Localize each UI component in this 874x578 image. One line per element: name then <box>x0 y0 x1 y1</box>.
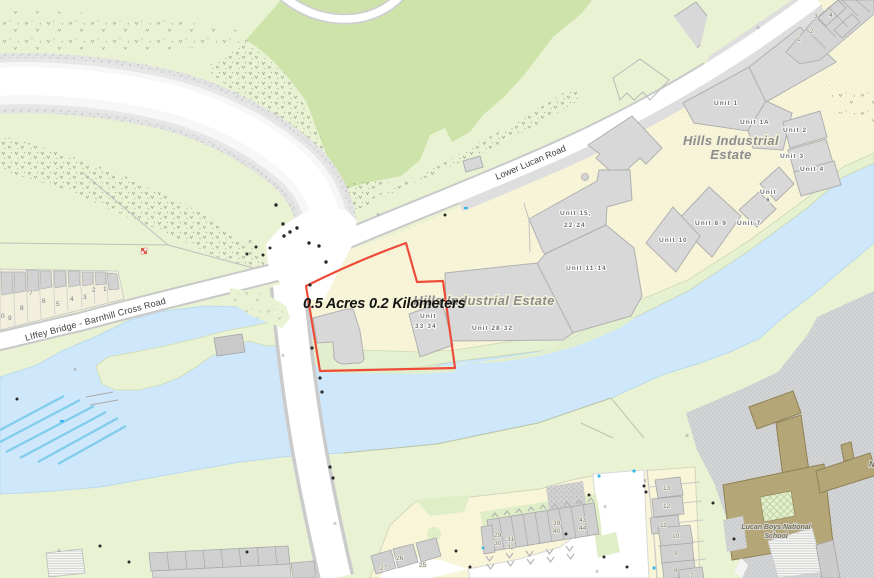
svg-text:8: 8 <box>674 567 678 574</box>
svg-text:44: 44 <box>579 525 587 532</box>
svg-text:11: 11 <box>660 522 667 529</box>
svg-text:×: × <box>57 548 61 555</box>
svg-text:×: × <box>376 212 380 219</box>
svg-text:0.5 Acres 0.2 Kilometers: 0.5 Acres 0.2 Kilometers <box>303 296 465 312</box>
svg-text:×: × <box>595 569 599 576</box>
svg-text:×: × <box>603 504 607 511</box>
svg-text:Unit 2: Unit 2 <box>783 127 807 134</box>
svg-text:Unit 1A: Unit 1A <box>740 119 770 126</box>
svg-text:×: × <box>248 239 252 246</box>
svg-text:9: 9 <box>8 315 12 322</box>
svg-text:33-34: 33-34 <box>415 323 437 330</box>
svg-text:29: 29 <box>494 532 502 539</box>
svg-text:3: 3 <box>814 13 818 20</box>
svg-text:×: × <box>333 521 337 528</box>
svg-text:N: N <box>869 460 874 469</box>
svg-text:40: 40 <box>553 528 561 535</box>
svg-text:Unit 4: Unit 4 <box>800 166 824 173</box>
svg-text:Unit 28-32: Unit 28-32 <box>472 325 513 332</box>
svg-text:6: 6 <box>766 197 771 204</box>
svg-text:2: 2 <box>810 28 814 35</box>
svg-text:1: 1 <box>797 36 801 43</box>
svg-text:2: 2 <box>92 287 96 294</box>
svg-text:31: 31 <box>507 536 515 543</box>
svg-text:Hills Industrial: Hills Industrial <box>683 133 779 148</box>
svg-text:Unit 8-9: Unit 8-9 <box>695 220 727 227</box>
svg-text:School: School <box>764 533 788 540</box>
svg-text:Unit 10: Unit 10 <box>659 237 688 244</box>
svg-text:Unit 7: Unit 7 <box>737 220 761 227</box>
svg-text:3: 3 <box>83 294 87 301</box>
svg-text:Unit 3: Unit 3 <box>780 153 804 160</box>
svg-text:8: 8 <box>20 305 24 312</box>
svg-text:4: 4 <box>70 296 74 303</box>
svg-text:12: 12 <box>663 503 671 510</box>
svg-text:7: 7 <box>29 290 33 297</box>
svg-text:9: 9 <box>674 550 678 557</box>
svg-text:Unit: Unit <box>760 189 777 196</box>
svg-text:39: 39 <box>553 520 561 527</box>
svg-text:Lucan Boys National: Lucan Boys National <box>741 524 811 531</box>
svg-text:×: × <box>73 367 77 374</box>
svg-text:13: 13 <box>663 485 671 492</box>
svg-text:×: × <box>685 433 689 440</box>
svg-text:32: 32 <box>507 544 515 551</box>
svg-text:×: × <box>756 25 760 32</box>
svg-text:Unit 1: Unit 1 <box>714 100 738 107</box>
svg-text:6: 6 <box>42 298 46 305</box>
svg-text:7: 7 <box>690 573 694 578</box>
svg-text:Unit 15,: Unit 15, <box>560 210 591 217</box>
svg-text:Unit: Unit <box>420 313 437 320</box>
svg-text:5: 5 <box>56 301 60 308</box>
svg-text:4: 4 <box>829 12 833 19</box>
svg-text:26: 26 <box>396 555 404 562</box>
svg-text:30: 30 <box>494 540 502 547</box>
svg-text:×: × <box>281 353 285 360</box>
svg-text:1: 1 <box>103 286 107 293</box>
svg-text:22-24: 22-24 <box>564 222 586 229</box>
svg-text:0: 0 <box>1 313 5 320</box>
svg-text:25: 25 <box>419 562 427 569</box>
svg-text:Unit 11-14: Unit 11-14 <box>566 265 607 272</box>
svg-text:27: 27 <box>380 565 388 572</box>
svg-text:Estate: Estate <box>710 147 751 162</box>
svg-text:×: × <box>643 478 647 485</box>
svg-text:10: 10 <box>672 533 680 540</box>
svg-text:43: 43 <box>579 517 587 524</box>
